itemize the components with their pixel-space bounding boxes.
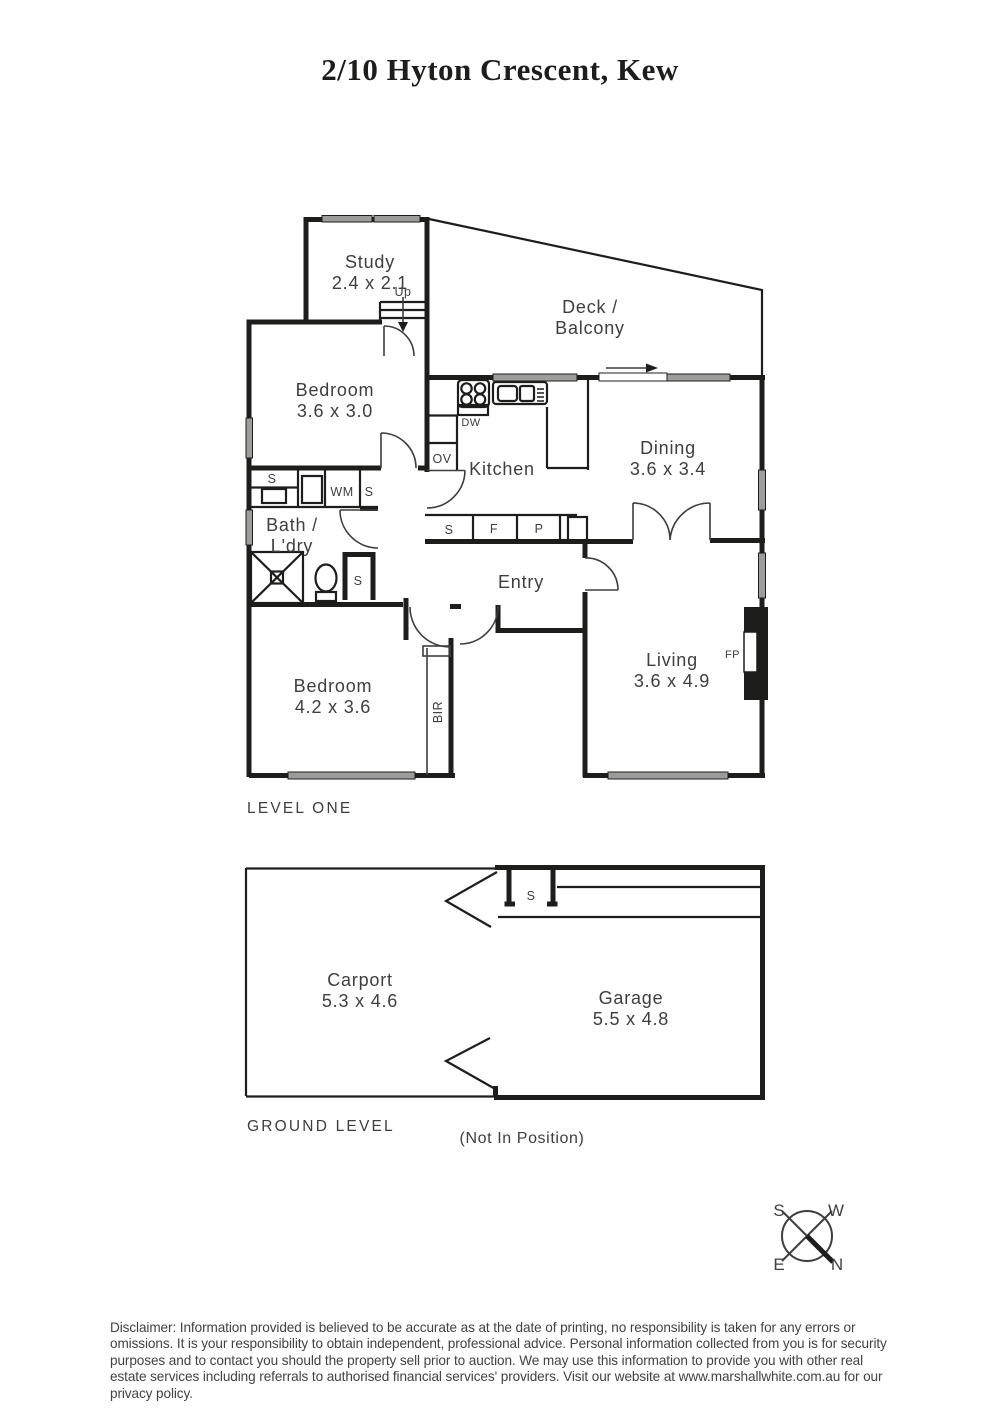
- window: [759, 470, 766, 510]
- fridge-label: F: [490, 522, 498, 536]
- window: [322, 216, 372, 223]
- ground-level-plan: Carport 5.3 x 4.6 Garage 5.5 x 4.8 S GRO…: [246, 865, 765, 1147]
- room-label-carport: Carport: [327, 970, 393, 990]
- window: [759, 553, 766, 598]
- floorplan-drawing: Study 2.4 x 2.1 Deck / Balcony Bedroom 3…: [0, 0, 1000, 1415]
- fireplace-label: FP: [725, 649, 740, 661]
- level-one-plan: Study 2.4 x 2.1 Deck / Balcony Bedroom 3…: [246, 216, 768, 818]
- room-label-bath2: L'dry: [271, 536, 313, 556]
- dishwasher-label: DW: [461, 417, 480, 429]
- pantry-label: P: [535, 522, 544, 536]
- slider-arrow-icon: [606, 364, 658, 373]
- window: [246, 418, 253, 458]
- disclaimer-text: Disclaimer: Information provided is beli…: [110, 1320, 902, 1403]
- window: [608, 772, 728, 779]
- window: [374, 216, 420, 223]
- fireplace-icon: [744, 607, 768, 700]
- room-label-living: Living: [646, 650, 698, 670]
- room-dims-carport: 5.3 x 4.6: [322, 991, 398, 1011]
- window: [667, 374, 730, 381]
- laundry-tub: [302, 476, 322, 503]
- bir-label: BIR: [431, 701, 445, 723]
- room-dims-dining: 3.6 x 3.4: [630, 459, 706, 479]
- room-label-bath: Bath /: [266, 515, 318, 535]
- floorplan-page: 2/10 Hyton Crescent, Kew: [0, 0, 1000, 1415]
- room-label-bedroom2: Bedroom: [294, 676, 373, 696]
- room-dims-bedroom1: 3.6 x 3.0: [297, 401, 373, 421]
- room-label-deck: Deck /: [562, 297, 618, 317]
- cupboard-label: S: [354, 574, 363, 588]
- room-label-garage: Garage: [599, 988, 664, 1008]
- carport-outline: [246, 868, 760, 1097]
- shower-icon: [251, 552, 303, 603]
- room-dims-garage: 5.5 x 4.8: [593, 1009, 669, 1029]
- window: [288, 772, 415, 779]
- window: [493, 374, 577, 381]
- washing-machine-label: WM: [330, 485, 353, 499]
- cooktop-icon: [458, 380, 489, 407]
- not-in-position-note: (Not In Position): [460, 1130, 585, 1147]
- storage-label: S: [527, 889, 536, 903]
- sliding-door: [599, 373, 667, 381]
- cupboard-label: S: [268, 472, 277, 486]
- room-label-dining: Dining: [640, 438, 696, 458]
- room-dims-bedroom2: 4.2 x 3.6: [295, 697, 371, 717]
- compass-s: S: [773, 1201, 784, 1220]
- compass-icon: S W E N: [773, 1201, 844, 1274]
- sink-icon: [493, 382, 547, 404]
- laundry-trough: [262, 489, 286, 503]
- toilet-icon: [316, 565, 337, 602]
- compass-w: W: [828, 1201, 844, 1220]
- room-label-entry: Entry: [498, 572, 544, 592]
- compass-n: N: [831, 1255, 843, 1274]
- window: [246, 510, 253, 545]
- compass-e: E: [773, 1255, 784, 1274]
- cupboard-label: S: [365, 485, 374, 499]
- oven-label: OV: [432, 452, 451, 466]
- room-label-kitchen: Kitchen: [469, 459, 535, 479]
- up-label: Up: [395, 285, 412, 299]
- cupboard-label: S: [445, 523, 454, 537]
- room-dims-living: 3.6 x 4.9: [634, 671, 710, 691]
- room-label-deck2: Balcony: [555, 318, 625, 338]
- page-title: 2/10 Hyton Crescent, Kew: [0, 52, 1000, 88]
- ground-level-caption: GROUND LEVEL: [247, 1118, 395, 1135]
- level-one-caption: LEVEL ONE: [247, 800, 352, 817]
- room-label-bedroom1: Bedroom: [296, 380, 375, 400]
- room-label-study: Study: [345, 252, 395, 272]
